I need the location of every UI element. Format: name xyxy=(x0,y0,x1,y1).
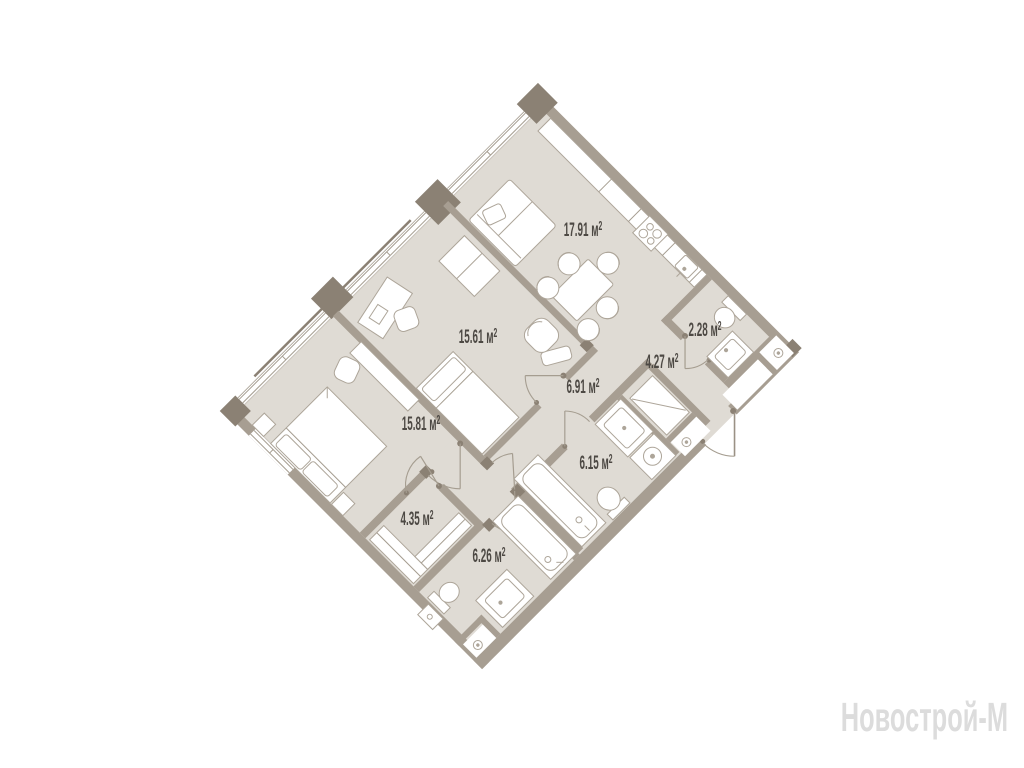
svg-text:6.26 м2: 6.26 м2 xyxy=(472,546,505,567)
svg-text:4.35 м2: 4.35 м2 xyxy=(400,509,433,530)
svg-text:2.28 м2: 2.28 м2 xyxy=(688,320,721,341)
svg-text:6.91 м2: 6.91 м2 xyxy=(566,377,599,398)
svg-text:6.15 м2: 6.15 м2 xyxy=(579,453,612,474)
svg-text:17.91 м2: 17.91 м2 xyxy=(564,220,603,241)
svg-text:4.27 м2: 4.27 м2 xyxy=(645,352,678,373)
svg-text:Новострой-М: Новострой-М xyxy=(841,695,1008,741)
svg-text:15.81 м2: 15.81 м2 xyxy=(402,414,441,435)
svg-text:15.61 м2: 15.61 м2 xyxy=(459,327,498,348)
